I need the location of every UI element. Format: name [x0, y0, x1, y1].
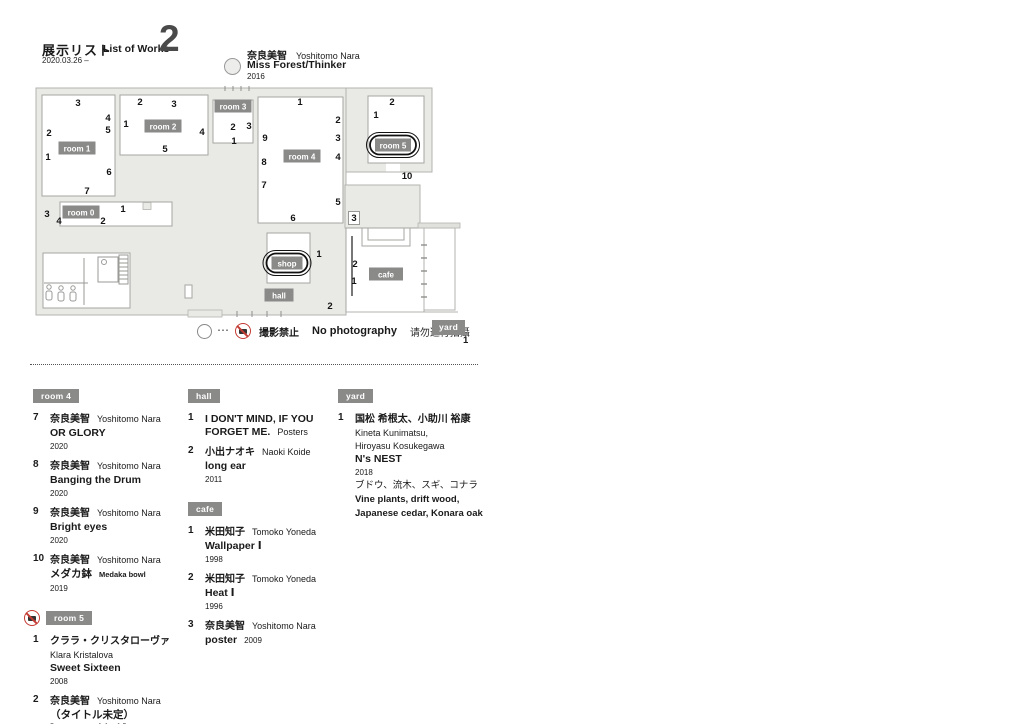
work-line: 2019 [50, 582, 185, 594]
plan-marker-number: 5 [162, 144, 168, 155]
plan-room-label: cafe [378, 270, 395, 279]
featured-work-title: Miss Forest/Thinker [247, 59, 346, 71]
legend: ⋯ 撮影禁止 No photography 请勿進行拍攝 [197, 323, 470, 339]
work-item: 3奈良美智Yoshitomo Naraposter2009 [188, 619, 340, 647]
work-marker-sample-circle [197, 324, 212, 339]
work-details: 奈良美智Yoshitomo NaraBright eyes2020 [50, 506, 185, 546]
work-line: 2018 [355, 466, 490, 478]
works-list-column-3: yard1国松 希根太、小助川 裕康Kineta Kunimatsu,Hiroy… [338, 388, 490, 536]
text-segment: 奈良美智 [50, 508, 90, 519]
text-segment: Sweet Sixteen [50, 662, 121, 674]
plan-marker-number: 5 [335, 197, 341, 208]
text-segment: 1996 [205, 602, 223, 611]
work-details: 国松 希根太、小助川 裕康Kineta Kunimatsu,Hiroyasu K… [355, 412, 490, 520]
plan-marker-number: 3 [335, 133, 340, 144]
text-segment: FORGET ME. [205, 426, 270, 438]
text-segment: 2018 [355, 468, 373, 477]
no-photography-jp: 撮影禁止 [259, 324, 299, 339]
text-segment: 米田知子 [205, 574, 245, 585]
text-segment: Banging the Drum [50, 474, 141, 486]
work-item: 2小出ナオキNaoki Koidelong ear2011 [188, 445, 340, 485]
plan-marker-number: 3 [171, 99, 176, 110]
text-segment: 小出ナオキ [205, 447, 255, 458]
text-segment: Vine plants, drift wood, [355, 494, 459, 505]
featured-work-marker-circle [224, 58, 241, 75]
exhibition-date: 2020.03.26 – [42, 56, 89, 65]
work-line: Kineta Kunimatsu, [355, 426, 490, 439]
plan-marker-number: 4 [56, 216, 62, 227]
work-item: 1I DON'T MIND, IF YOUFORGET ME.Posters [188, 412, 340, 438]
text-segment: メダカ鉢 [50, 568, 92, 580]
work-item: 8奈良美智Yoshitomo NaraBanging the Drum2020 [33, 459, 185, 499]
work-line: Banging the Drum [50, 473, 185, 486]
work-item: 1米田知子Tomoko YonedaWallpaper Ⅰ1998 [188, 525, 340, 565]
work-line: 1996 [205, 600, 340, 612]
works-section: yard1国松 希根太、小助川 裕康Kineta Kunimatsu,Hiroy… [338, 388, 490, 520]
plan-room-label: hall [272, 291, 286, 300]
work-line: 2020 [50, 534, 185, 546]
floor-plan: room 1room 2room 3room 4room 5room 0shop… [28, 85, 480, 323]
section-header: yard [338, 388, 490, 404]
work-line: Sweet Sixteen [50, 661, 185, 674]
work-line: 奈良美智Yoshitomo Nara [50, 553, 185, 567]
section-header: room 4 [33, 388, 185, 404]
work-line: 小出ナオキNaoki Koide [205, 445, 340, 459]
work-number: 3 [188, 619, 205, 647]
work-number: 2 [188, 572, 205, 612]
work-item: 7奈良美智Yoshitomo NaraOR GLORY2020 [33, 412, 185, 452]
text-segment: Wallpaper Ⅰ [205, 540, 262, 552]
work-details: 奈良美智Yoshitomo Naraposter2009 [205, 619, 340, 647]
text-segment: ブドウ、流木、スギ、コナラ [355, 480, 478, 491]
work-line: クララ・クリスタローヴァ [50, 634, 185, 648]
no-photography-icon [24, 610, 40, 626]
room-5-area [368, 96, 424, 163]
work-item: 9奈良美智Yoshitomo NaraBright eyes2020 [33, 506, 185, 546]
work-details: 米田知子Tomoko YonedaHeat Ⅰ1996 [205, 572, 340, 612]
text-segment: I DON'T MIND, IF YOU [205, 413, 313, 425]
works-section: room 51クララ・クリスタローヴァKlara KristalovaSweet… [33, 610, 185, 724]
plan-marker-number: 7 [84, 186, 89, 197]
plan-marker-number: 3 [351, 213, 356, 224]
text-segment: 奈良美智 [50, 461, 90, 472]
work-line: 2008 [50, 675, 185, 687]
plan-marker-number: 3 [246, 121, 251, 132]
plan-marker-number: 1 [123, 119, 129, 130]
text-segment: （タイトル未定） [50, 709, 134, 721]
work-line: I DON'T MIND, IF YOU [205, 412, 340, 425]
plan-room-label: room 0 [68, 208, 95, 217]
work-details: 小出ナオキNaoki Koidelong ear2011 [205, 445, 340, 485]
work-line: 米田知子Tomoko Yoneda [205, 525, 340, 539]
plan-marker-number: 6 [290, 213, 295, 224]
work-details: 米田知子Tomoko YonedaWallpaper Ⅰ1998 [205, 525, 340, 565]
work-line: Klara Kristalova [50, 648, 185, 661]
plan-marker-number: 1 [120, 204, 126, 215]
work-line: Heat Ⅰ [205, 586, 340, 599]
work-line: 奈良美智Yoshitomo Nara [50, 694, 185, 708]
text-segment: long ear [205, 460, 246, 472]
work-line: 2020 [50, 440, 185, 452]
works-section: hall1I DON'T MIND, IF YOUFORGET ME.Poste… [188, 388, 340, 485]
plan-marker-number: 1 [231, 136, 237, 147]
text-segment: 2020 [50, 536, 68, 545]
work-line: Hiroyasu Kosukegawa [355, 439, 490, 452]
plan-marker-number: 3 [75, 98, 80, 109]
plan-marker-number: 2 [230, 122, 235, 133]
work-number: 2 [188, 445, 205, 485]
entrance-step [188, 310, 222, 317]
text-segment: Yoshitomo Nara [97, 414, 161, 424]
text-segment: Yoshitomo Nara [97, 508, 161, 518]
section-label-badge: cafe [188, 502, 222, 517]
dotted-separator [30, 364, 478, 365]
work-line: 奈良美智Yoshitomo Nara [205, 619, 340, 633]
text-segment: Naoki Koide [262, 447, 311, 457]
work-number: 1 [33, 634, 50, 687]
text-segment: 国松 希根太、小助川 裕康 [355, 414, 471, 425]
wall-slat [185, 285, 192, 298]
text-segment: 2009 [244, 636, 262, 645]
work-item: 2奈良美智Yoshitomo Nara（タイトル未定）[ Not yet tit… [33, 694, 185, 724]
work-number: 1 [188, 525, 205, 565]
work-line: 米田知子Tomoko Yoneda [205, 572, 340, 586]
work-number: 7 [33, 412, 50, 452]
text-segment: Yoshitomo Nara [97, 461, 161, 471]
plan-room-label: shop [277, 259, 296, 268]
work-details: I DON'T MIND, IF YOUFORGET ME.Posters [205, 412, 340, 438]
yard-work-number: 1 [463, 335, 468, 346]
work-line: Vine plants, drift wood, [355, 492, 490, 506]
text-segment: 2008 [50, 677, 68, 686]
work-line: OR GLORY [50, 426, 185, 439]
corridor-tab [143, 203, 151, 210]
text-segment: OR GLORY [50, 427, 106, 439]
section-header: hall [188, 388, 340, 404]
text-segment: Tomoko Yoneda [252, 574, 316, 584]
plan-marker-number: 10 [402, 171, 413, 182]
plan-marker-number: 2 [327, 301, 332, 312]
text-segment: Yoshitomo Nara [97, 696, 161, 706]
work-line: N's NEST [355, 452, 490, 465]
plan-room-label: room 1 [64, 144, 91, 153]
work-line: 奈良美智Yoshitomo Nara [50, 459, 185, 473]
text-segment: 奈良美智 [205, 621, 245, 632]
work-number: 1 [338, 412, 355, 520]
plan-marker-number: 6 [106, 167, 111, 178]
section-header: cafe [188, 501, 340, 517]
work-item: 1国松 希根太、小助川 裕康Kineta Kunimatsu,Hiroyasu … [338, 412, 490, 520]
work-details: 奈良美智Yoshitomo NaraOR GLORY2020 [50, 412, 185, 452]
work-line: long ear [205, 459, 340, 472]
page-number: 2 [159, 20, 180, 58]
no-photography-icon [235, 323, 251, 339]
plan-marker-number: 2 [352, 259, 357, 270]
work-number: 1 [188, 412, 205, 438]
no-photography-en: No photography [312, 325, 397, 337]
work-number: 8 [33, 459, 50, 499]
text-segment: 2020 [50, 489, 68, 498]
text-segment: Medaka bowl [99, 570, 146, 579]
text-segment: Heat Ⅰ [205, 587, 235, 599]
plan-marker-number: 1 [297, 97, 303, 108]
plan-marker-number: 2 [335, 115, 340, 126]
terrace-top-bar [418, 223, 460, 228]
work-details: クララ・クリスタローヴァKlara KristalovaSweet Sixtee… [50, 634, 185, 687]
works-list-column-1: room 47奈良美智Yoshitomo NaraOR GLORY20208奈良… [33, 388, 185, 724]
text-segment: 奈良美智 [50, 414, 90, 425]
text-segment: poster [205, 634, 237, 646]
plan-marker-number: 1 [45, 152, 51, 163]
work-line: Bright eyes [50, 520, 185, 533]
work-line: FORGET ME.Posters [205, 425, 340, 438]
work-line: Japanese cedar, Konara oak [355, 506, 490, 520]
text-segment: 2020 [50, 442, 68, 451]
work-item: 10奈良美智Yoshitomo Naraメダカ鉢Medaka bowl2019 [33, 553, 185, 594]
work-details: 奈良美智Yoshitomo Naraメダカ鉢Medaka bowl2019 [50, 553, 185, 594]
text-segment: 奈良美智 [50, 696, 90, 707]
plan-marker-number: 1 [351, 276, 357, 287]
work-line: ブドウ、流木、スギ、コナラ [355, 478, 490, 492]
plan-marker-number: 2 [100, 216, 105, 227]
works-section: cafe1米田知子Tomoko YonedaWallpaper Ⅰ19982米田… [188, 501, 340, 647]
text-segment: 2019 [50, 584, 68, 593]
plan-marker-number: 7 [261, 180, 266, 191]
section-label-badge: yard [338, 389, 373, 404]
plan-room-label: room 3 [220, 102, 247, 111]
work-line: 2020 [50, 487, 185, 499]
text-segment: Yoshitomo Nara [252, 621, 316, 631]
plan-room-label: room 2 [150, 122, 177, 131]
plan-marker-number: 5 [105, 125, 111, 136]
text-segment: Bright eyes [50, 521, 107, 533]
plan-marker-number: 4 [105, 113, 111, 124]
work-line: メダカ鉢Medaka bowl [50, 567, 185, 581]
text-segment: Japanese cedar, Konara oak [355, 508, 483, 519]
work-item: 1クララ・クリスタローヴァKlara KristalovaSweet Sixte… [33, 634, 185, 687]
plan-marker-number: 4 [335, 152, 341, 163]
text-segment: 奈良美智 [50, 555, 90, 566]
works-section: room 47奈良美智Yoshitomo NaraOR GLORY20208奈良… [33, 388, 185, 594]
yard-label-badge: yard [432, 320, 465, 335]
plan-marker-number: 4 [199, 127, 205, 138]
text-segment: 米田知子 [205, 527, 245, 538]
text-segment: N's NEST [355, 453, 402, 465]
text-segment: クララ・クリスタローヴァ [50, 636, 170, 647]
section-label-badge: hall [188, 389, 220, 404]
text-segment: Yoshitomo Nara [97, 555, 161, 565]
section-label-badge: room 5 [46, 611, 92, 626]
work-line: Wallpaper Ⅰ [205, 539, 340, 552]
plan-marker-number: 9 [262, 133, 267, 144]
plan-room-label: room 4 [289, 152, 316, 161]
section-header: room 5 [33, 610, 185, 626]
text-segment: Hiroyasu Kosukegawa [355, 441, 445, 451]
plan-marker-number: 3 [44, 209, 49, 220]
work-details: 奈良美智Yoshitomo NaraBanging the Drum2020 [50, 459, 185, 499]
work-line: 国松 希根太、小助川 裕康 [355, 412, 490, 426]
work-line: 2011 [205, 473, 340, 485]
work-item: 2米田知子Tomoko YonedaHeat Ⅰ1996 [188, 572, 340, 612]
terrace-area [424, 228, 455, 310]
section-label-badge: room 4 [33, 389, 79, 404]
plan-room-label: room 5 [380, 141, 407, 150]
plan-marker-number: 1 [316, 249, 322, 260]
text-segment: Tomoko Yoneda [252, 527, 316, 537]
plan-marker-number: 8 [261, 157, 266, 168]
text-segment: 2011 [205, 475, 222, 484]
work-details: 奈良美智Yoshitomo Nara（タイトル未定）[ Not yet titl… [50, 694, 185, 724]
work-number: 9 [33, 506, 50, 546]
text-segment: Posters [277, 427, 308, 437]
text-segment: 1998 [205, 555, 223, 564]
plan-marker-number: 2 [46, 128, 51, 139]
work-line: 1998 [205, 553, 340, 565]
legend-dots: ⋯ [217, 323, 230, 337]
plan-marker-number: 1 [373, 110, 379, 121]
works-list-column-2: hall1I DON'T MIND, IF YOUFORGET ME.Poste… [188, 388, 340, 663]
text-segment: Kineta Kunimatsu, [355, 428, 428, 438]
text-segment: Klara Kristalova [50, 650, 113, 660]
plan-marker-number: 2 [389, 97, 394, 108]
work-line: 奈良美智Yoshitomo Nara [50, 412, 185, 426]
work-line: 奈良美智Yoshitomo Nara [50, 506, 185, 520]
work-number: 10 [33, 553, 50, 594]
room-5-door-gap [386, 164, 400, 172]
work-line: （タイトル未定） [50, 708, 185, 721]
plan-marker-number: 2 [137, 97, 142, 108]
work-number: 2 [33, 694, 50, 724]
document-page: 展示リスト List of Works 2 2020.03.26 – 奈良美智Y… [0, 0, 1024, 724]
featured-work-year: 2016 [247, 72, 265, 81]
work-line: poster2009 [205, 633, 340, 647]
